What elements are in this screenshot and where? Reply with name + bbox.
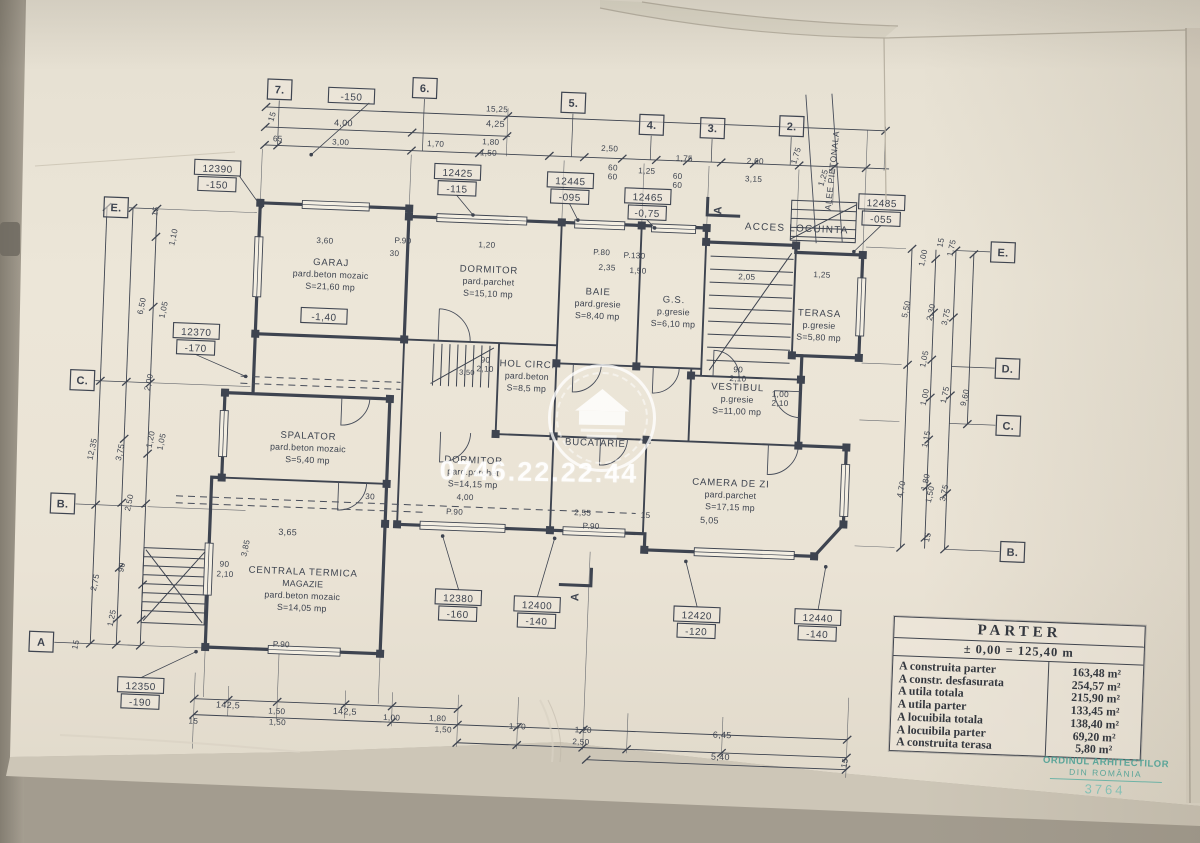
room-label: DORMITOR: [459, 264, 518, 277]
level-marker-value: -150: [340, 92, 362, 104]
column: [794, 441, 802, 449]
column: [797, 376, 805, 384]
dim-label: 2,35: [598, 263, 616, 273]
dim-label: 1,75: [676, 154, 694, 164]
room-label: S=5,80 mp: [796, 331, 841, 343]
column: [393, 520, 401, 528]
dim-label: P.90: [446, 507, 463, 517]
column: [405, 204, 413, 212]
axis-label: 5.: [568, 98, 578, 110]
dim-label: 5,40: [711, 752, 730, 763]
dim-label: 3,15: [745, 174, 763, 184]
column: [381, 520, 389, 528]
level-marker-value: 12440: [802, 613, 833, 625]
dim-label: 60: [673, 172, 683, 181]
level-marker-value: 12400: [522, 600, 553, 612]
room-label: pard.parchet: [462, 276, 514, 288]
dim-label: 4,25: [486, 118, 505, 129]
dim-label: 1,50: [480, 148, 498, 158]
column: [400, 335, 408, 343]
dim-label: 2,60: [747, 156, 765, 166]
room-label: S=8,5 mp: [506, 382, 546, 394]
dim-label: 65: [273, 134, 283, 143]
level-marker-elevation: -115: [446, 184, 468, 196]
room-label: S=14,05 mp: [277, 602, 327, 614]
column: [376, 650, 384, 658]
column: [703, 224, 711, 232]
dim-label: 4,00: [456, 493, 474, 503]
column: [405, 212, 413, 220]
column: [842, 443, 850, 451]
level-marker-elevation: -120: [685, 626, 707, 638]
room-label: TERASA: [798, 308, 842, 321]
room-label: S=21,60 mp: [305, 281, 355, 293]
room-label: S=5,40 mp: [285, 454, 330, 466]
photo-of-floor-plan: 7.6.5.4.3.2.E.C.B.AE.D.C.B. 12390-150-15…: [0, 0, 1200, 843]
dim-label: 1,25: [813, 270, 831, 280]
dim-label: P.130: [623, 251, 645, 261]
axis-label: B.: [57, 498, 69, 510]
dim-label: P.90: [394, 236, 411, 246]
dim-label: 142,5: [333, 706, 357, 717]
column: [855, 354, 863, 362]
dim-label: 1,50: [269, 718, 287, 728]
column: [642, 436, 650, 444]
dim-label: 6,45: [713, 730, 732, 741]
level-marker-value: 12445: [555, 176, 586, 188]
level-marker-value: 12485: [866, 198, 897, 210]
room-label: G.S.: [662, 294, 685, 306]
column: [491, 430, 499, 438]
dim-label: 1,25: [638, 166, 656, 176]
axis-label: 6.: [420, 83, 430, 95]
dim-label: 1,00: [383, 713, 401, 723]
dim-label: 1,50: [268, 706, 286, 716]
column: [546, 526, 554, 534]
level-marker-value: 12370: [181, 327, 212, 339]
dim-label: P.90: [273, 640, 290, 650]
room-label: DORMITOR: [444, 454, 503, 467]
room-label: p.gresie: [657, 306, 690, 317]
column: [382, 480, 390, 488]
axis-label: 4.: [646, 120, 656, 132]
level-marker-value: 12350: [125, 681, 156, 693]
room-label: HOL CIRC.: [499, 358, 555, 371]
level-marker-value: -1,40: [311, 312, 337, 324]
dim-label: 1,80: [482, 137, 500, 147]
room-label: GARAJ: [313, 257, 349, 269]
dim-label: 1,70: [509, 722, 527, 732]
room-label: SPALATOR: [280, 430, 336, 443]
column: [702, 238, 710, 246]
level-marker-elevation: -160: [446, 609, 468, 621]
room-label: S=14,15 mp: [448, 478, 498, 490]
dim-label: 2,10: [476, 364, 494, 374]
dim-label: P.80: [593, 248, 610, 258]
dim-label: 1,70: [427, 139, 445, 149]
column: [792, 241, 800, 249]
dim-label: 2,50: [572, 737, 590, 747]
room-label: p.gresie: [720, 394, 753, 405]
column: [640, 546, 648, 554]
dim-label: 2,05: [738, 272, 756, 282]
axis-label: 2.: [786, 121, 796, 133]
dim-label: 2,10: [729, 374, 747, 384]
dim-label: 15,25: [486, 104, 508, 114]
room-label: pard.beton: [505, 370, 549, 382]
room-label: pard.parchet: [447, 466, 499, 478]
level-marker-elevation: -095: [559, 192, 581, 204]
table-body: A construita parter163,48 m² A constr. d…: [890, 656, 1143, 759]
axis-label: C.: [76, 375, 88, 387]
room-label: BUCATARIE: [565, 437, 626, 450]
column: [386, 395, 394, 403]
column: [218, 473, 226, 481]
room-label: p.gresie: [802, 320, 835, 331]
dim-label: 3,50: [459, 368, 475, 378]
dim-label: 2,55: [574, 508, 592, 518]
dim-label: 4,00: [334, 118, 353, 129]
room-label: pard.parchet: [704, 489, 756, 501]
level-marker-value: 12425: [442, 168, 473, 180]
dim-label: 1,50: [434, 725, 452, 735]
dim-label: 3,60: [316, 236, 334, 246]
dim-label: 15: [188, 716, 198, 725]
room-label: S=8,40 mp: [575, 310, 620, 322]
column: [549, 432, 557, 440]
dim-label: 1,20: [478, 240, 496, 250]
column: [810, 552, 818, 560]
axis-label: A: [37, 637, 46, 649]
dim-label: 1,80: [429, 714, 447, 724]
dim-label: 60: [672, 181, 682, 190]
level-marker-value: 12420: [681, 610, 712, 622]
level-marker-elevation: -055: [870, 214, 892, 226]
dim-label: 90: [219, 560, 229, 569]
dim-label: 142,5: [216, 699, 240, 710]
dim-label: 15: [641, 511, 651, 520]
column: [859, 251, 867, 259]
column: [638, 221, 646, 229]
axis-label: 3.: [707, 123, 717, 135]
clip-shadow: [0, 222, 20, 256]
column: [201, 643, 209, 651]
dim-label: 2,10: [216, 569, 234, 579]
dim-label: 1,20: [575, 725, 593, 735]
column: [221, 388, 229, 396]
room-label: pard.gresie: [574, 298, 621, 310]
level-marker-elevation: -190: [129, 697, 151, 709]
column: [251, 330, 259, 338]
dim-label: 60: [608, 163, 618, 172]
room-label: S=6,10 mp: [651, 318, 696, 330]
dim-label: 30: [389, 249, 399, 258]
axis-label: 7.: [275, 84, 285, 96]
room-label: S=15,10 mp: [463, 288, 513, 300]
architect-registry-stamp: ORDINUL ARHITECTILOR DIN ROMÂNIA 3764: [1017, 754, 1193, 800]
column: [558, 218, 566, 226]
column: [687, 371, 695, 379]
level-marker-value: 12465: [632, 192, 663, 204]
dim-label: 2,10: [771, 399, 789, 409]
dim-label: 60: [608, 172, 618, 181]
dim-label: 1,50: [629, 266, 647, 276]
dim-label: 90: [480, 355, 490, 364]
level-marker-value: 12390: [202, 164, 233, 176]
column: [839, 520, 847, 528]
column: [788, 351, 796, 359]
level-marker-elevation: -140: [806, 629, 828, 641]
dim-label: P.90: [582, 521, 599, 531]
dim-label: 3,00: [332, 138, 350, 148]
dim-label: 90: [733, 365, 743, 374]
room-label: S=17,15 mp: [705, 501, 755, 513]
level-marker-value: 12380: [443, 593, 474, 605]
dim-label: 3,65: [278, 527, 297, 538]
level-marker-elevation: -150: [206, 180, 228, 192]
level-marker-elevation: -0,75: [634, 208, 660, 220]
area-table: PARTER ± 0,00 = 125,40 m A construita pa…: [889, 616, 1146, 760]
room-label: BAIE: [585, 286, 610, 298]
dim-label: 2,50: [601, 144, 619, 154]
axis-label: E.: [110, 202, 121, 214]
column: [632, 362, 640, 370]
dim-label: 5,05: [700, 515, 719, 526]
section-letter-bottom: A: [569, 593, 581, 601]
room-label: MAGAZIE: [282, 578, 323, 590]
level-marker-elevation: -140: [525, 616, 547, 628]
level-marker-elevation: -170: [184, 343, 206, 355]
section-letter-top: A: [712, 206, 724, 214]
room-label: S=11,00 mp: [712, 405, 761, 417]
dim-label: 30: [365, 492, 375, 501]
